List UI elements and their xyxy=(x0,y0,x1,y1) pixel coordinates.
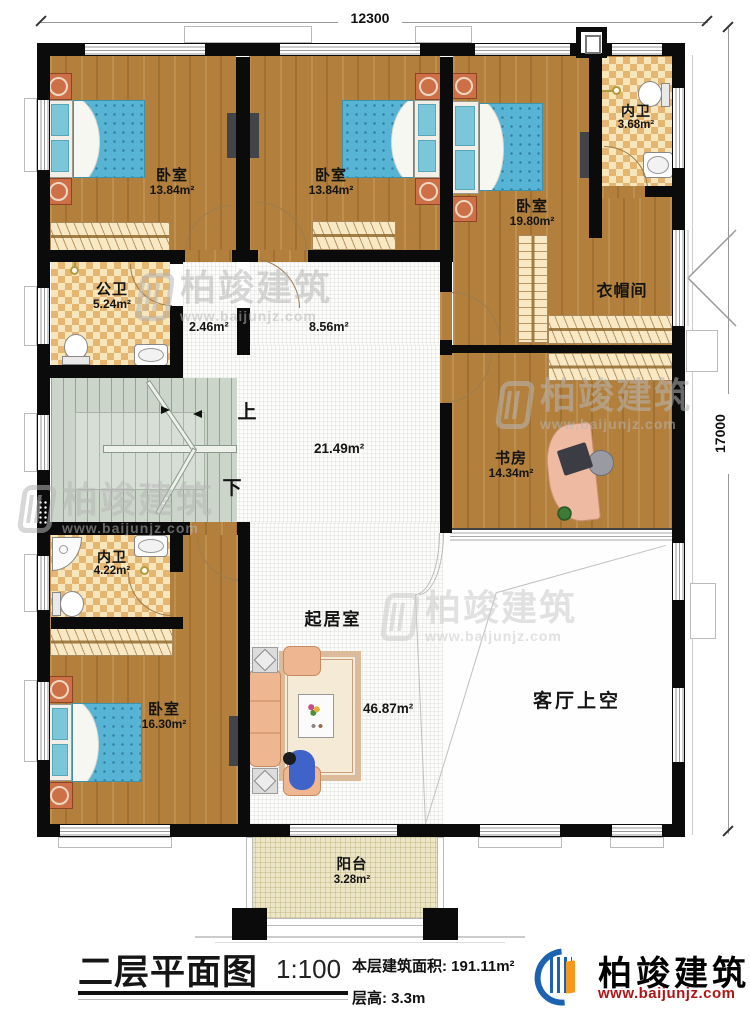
wall-segment xyxy=(250,250,258,262)
dimension-label-right: 17000 xyxy=(712,394,730,474)
toilet-tank xyxy=(52,592,61,616)
window xyxy=(673,688,684,762)
void-floor xyxy=(443,541,672,824)
area-label-living: 46.87m² xyxy=(363,701,413,716)
staircase xyxy=(51,378,237,522)
stair-handrail xyxy=(103,445,237,453)
wardrobe xyxy=(50,222,170,251)
window xyxy=(673,230,684,326)
table-dots xyxy=(311,723,323,729)
wall-vent xyxy=(38,500,49,526)
door-arc xyxy=(452,292,500,340)
window-sill xyxy=(24,98,37,172)
door-arc xyxy=(443,355,491,403)
door-arc xyxy=(185,205,233,253)
awning-outline xyxy=(415,26,472,43)
nightstand xyxy=(46,676,73,703)
living-curve-rail xyxy=(419,533,444,595)
tv-icon xyxy=(229,716,238,766)
door-arc xyxy=(257,202,307,252)
door-arc xyxy=(250,258,300,308)
window-sill xyxy=(24,413,37,472)
balcony-rail xyxy=(246,918,444,926)
wall-segment xyxy=(51,617,183,629)
stair-direction-arrow xyxy=(161,406,170,414)
room-label-bedroom2: 卧室13.84m² xyxy=(286,167,376,198)
study-glass-wall xyxy=(450,528,685,541)
wall-segment xyxy=(236,57,250,250)
window xyxy=(280,44,420,55)
nightstand xyxy=(415,73,442,100)
wall-segment xyxy=(440,57,453,250)
room-label-balcony: 阳台3.28m² xyxy=(307,857,397,887)
nightstand xyxy=(451,73,477,99)
person-figure xyxy=(289,750,315,790)
wall-segment xyxy=(37,365,183,378)
room-label-void: 客厅上空 xyxy=(517,686,637,713)
floor-height-label: 层高: xyxy=(352,990,387,1007)
wall-segment xyxy=(237,250,250,260)
nightstand xyxy=(415,178,442,205)
light-icon xyxy=(612,86,621,95)
wall-segment xyxy=(440,403,452,533)
wall-segment xyxy=(440,340,452,355)
light-cord xyxy=(602,90,613,92)
balcony-pillar xyxy=(232,908,267,940)
bed-pillow xyxy=(418,104,436,136)
wall-segment xyxy=(170,306,183,366)
floor-area-value: 191.11m² xyxy=(451,958,514,975)
wardrobe xyxy=(50,628,173,656)
cloakroom-wardrobe xyxy=(518,235,548,343)
wall-segment xyxy=(452,345,685,353)
floor-height-value: 3.3m xyxy=(391,990,425,1007)
plan-title: 二层平面图 xyxy=(78,944,258,995)
wall-segment xyxy=(170,250,183,264)
floor-area-label: 本层建筑面积: xyxy=(352,958,447,975)
window-sill xyxy=(478,837,562,848)
tv-icon xyxy=(580,132,589,178)
plan-scale: 1:100 xyxy=(276,954,341,985)
end-table xyxy=(252,768,278,794)
area-label-hallway: 8.56m² xyxy=(309,320,349,334)
person-head xyxy=(283,752,296,765)
bed-pillow xyxy=(52,708,68,740)
window xyxy=(612,44,662,55)
bed-pillow xyxy=(52,744,68,776)
toilet-icon xyxy=(60,591,84,617)
window xyxy=(475,44,570,55)
floor-height-text: 层高: 3.3m xyxy=(352,987,425,1008)
window xyxy=(85,44,205,55)
dimension-tick xyxy=(701,15,712,26)
balcony-door xyxy=(290,825,397,836)
floor-plan: 卧室13.84m² 卧室13.84m² 卧室19.80m² 内卫3.68m² 衣… xyxy=(0,0,750,1017)
bed-sheet xyxy=(73,100,100,178)
sink-icon xyxy=(134,344,168,366)
wall-segment xyxy=(589,57,602,238)
floor-area-text: 本层建筑面积: 191.11m² xyxy=(352,955,515,976)
room-label-ensuite-top: 内卫3.68m² xyxy=(591,103,681,132)
end-table xyxy=(252,647,278,673)
bed-pillow xyxy=(455,150,475,190)
window-sill xyxy=(610,837,664,848)
tv-icon xyxy=(250,113,259,158)
coffee-table xyxy=(298,694,334,738)
window xyxy=(38,682,49,760)
title-underline-thin xyxy=(78,999,348,1000)
toilet-tank xyxy=(62,356,90,365)
window-sill xyxy=(690,583,716,639)
cloakroom-wardrobe xyxy=(548,315,676,344)
bed-sheet xyxy=(72,703,99,782)
wall-segment xyxy=(440,250,452,292)
light-icon xyxy=(70,266,79,275)
brand-url: www.baijunjz.com xyxy=(598,985,735,1002)
room-label-bedroom1: 卧室13.84m² xyxy=(127,167,217,198)
bed-pillow xyxy=(51,140,69,172)
door-arc xyxy=(128,572,172,616)
bay-window-icon xyxy=(684,226,740,330)
balcony-pillar xyxy=(423,908,458,940)
bed-sheet xyxy=(479,103,504,191)
brand-logo-icon xyxy=(535,948,591,1006)
window xyxy=(38,288,49,344)
wall-segment xyxy=(37,522,190,535)
stairs-down-label: 下 xyxy=(217,473,247,500)
window xyxy=(38,556,49,610)
armchair xyxy=(283,646,321,676)
room-label-ensuite-bottom: 内卫4.22m² xyxy=(67,549,157,578)
window xyxy=(612,825,662,836)
wall-segment xyxy=(237,522,250,535)
room-label-bedroom3: 卧室19.80m² xyxy=(487,198,577,229)
door-threshold xyxy=(440,292,452,340)
nightstand xyxy=(451,196,477,222)
room-label-bedroom4: 卧室16.30m² xyxy=(119,701,209,732)
window xyxy=(673,543,684,600)
wall-segment xyxy=(308,250,453,262)
window-sill xyxy=(24,554,37,612)
chimney-icon xyxy=(576,27,607,58)
dimension-label-top: 12300 xyxy=(338,10,402,27)
brand-logo-accent xyxy=(566,960,575,993)
wall-segment xyxy=(645,186,675,197)
window-sill xyxy=(686,330,718,372)
door-arc xyxy=(197,536,242,581)
tv-icon xyxy=(227,113,236,158)
bed-pillow xyxy=(455,106,475,146)
window xyxy=(60,825,170,836)
window xyxy=(480,825,560,836)
door-threshold xyxy=(190,522,237,535)
eave-line xyxy=(692,55,693,835)
nightstand xyxy=(46,782,73,809)
title-underline xyxy=(78,991,348,995)
flower-decor xyxy=(307,703,321,717)
dimension-tick xyxy=(35,15,46,26)
wall-segment xyxy=(170,535,183,572)
room-label-public-bath: 公卫5.24m² xyxy=(67,281,157,312)
stair-direction-arrow xyxy=(193,410,202,418)
window xyxy=(38,415,49,470)
bed-pillow xyxy=(418,140,436,172)
stairs-up-label: 上 xyxy=(232,397,262,424)
window-sill xyxy=(24,286,37,346)
plant-icon xyxy=(556,505,573,522)
room-label-cloakroom: 衣帽间 xyxy=(572,277,672,301)
ground-line xyxy=(215,942,505,943)
area-label-vestibule: 2.46m² xyxy=(189,320,229,334)
wall-segment xyxy=(237,308,250,355)
wall-segment xyxy=(37,250,185,262)
window-sill xyxy=(24,680,37,762)
window xyxy=(38,100,49,170)
door-arc xyxy=(604,146,648,190)
wardrobe xyxy=(312,221,396,250)
bed-mattress xyxy=(479,103,543,191)
window-sill xyxy=(58,837,172,848)
room-label-study: 书房14.34m² xyxy=(466,450,556,481)
study-wardrobe xyxy=(548,353,676,381)
wall-segment xyxy=(238,535,250,824)
room-label-living: 起居室 xyxy=(283,605,383,630)
sofa xyxy=(249,669,281,767)
awning-outline xyxy=(184,26,312,43)
bed-pillow xyxy=(51,104,69,136)
bed-sheet xyxy=(391,100,414,178)
chimney-flue xyxy=(585,35,601,54)
area-label-hall: 21.49m² xyxy=(314,441,364,456)
